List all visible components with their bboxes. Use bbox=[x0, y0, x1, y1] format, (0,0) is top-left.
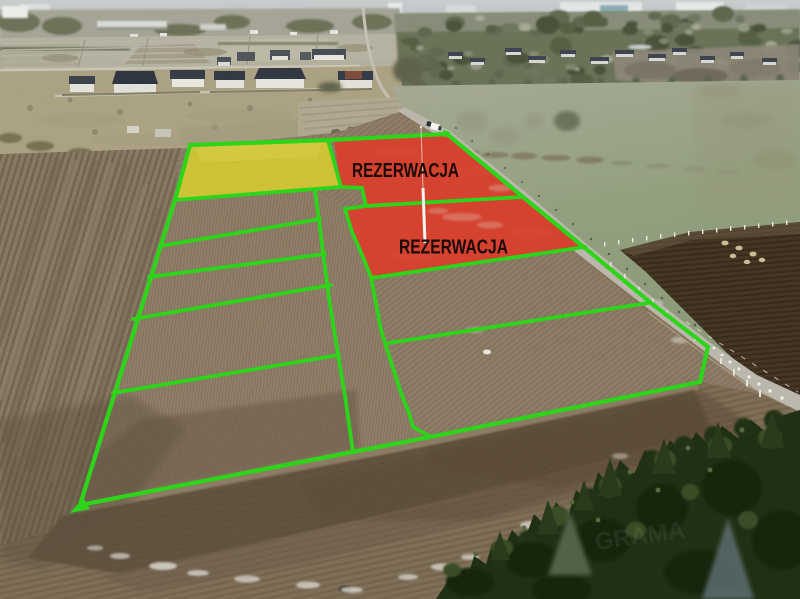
svg-text:REZERWACJA: REZERWACJA bbox=[352, 160, 459, 182]
svg-text:REZERWACJA: REZERWACJA bbox=[399, 237, 508, 259]
